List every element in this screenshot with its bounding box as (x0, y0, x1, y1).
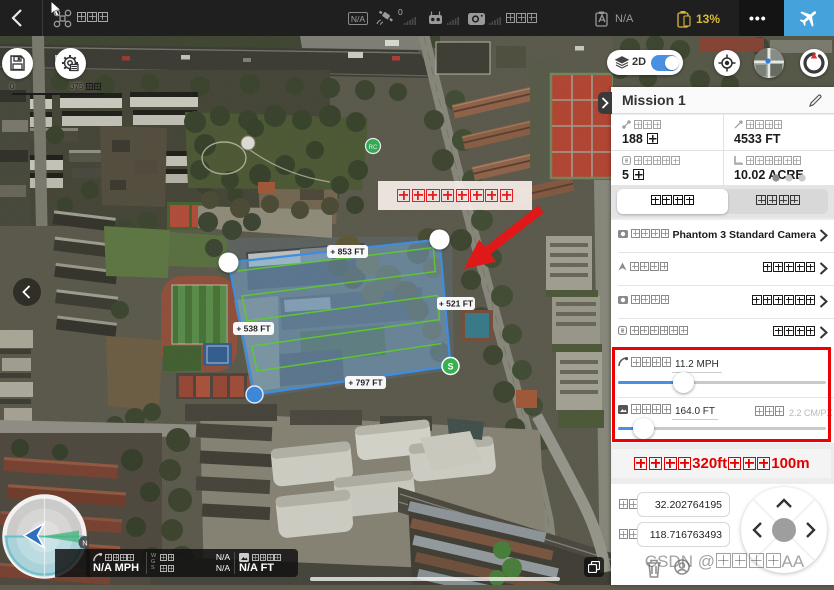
svg-text:+ 853 FT: + 853 FT (330, 247, 365, 257)
svg-text:N: N (82, 538, 87, 547)
svg-text:+ 521 FT: + 521 FT (439, 299, 474, 309)
svg-text:S: S (447, 362, 453, 372)
svg-text:+ 797 FT: + 797 FT (348, 378, 383, 388)
svg-text:+ 538 FT: + 538 FT (236, 324, 271, 334)
